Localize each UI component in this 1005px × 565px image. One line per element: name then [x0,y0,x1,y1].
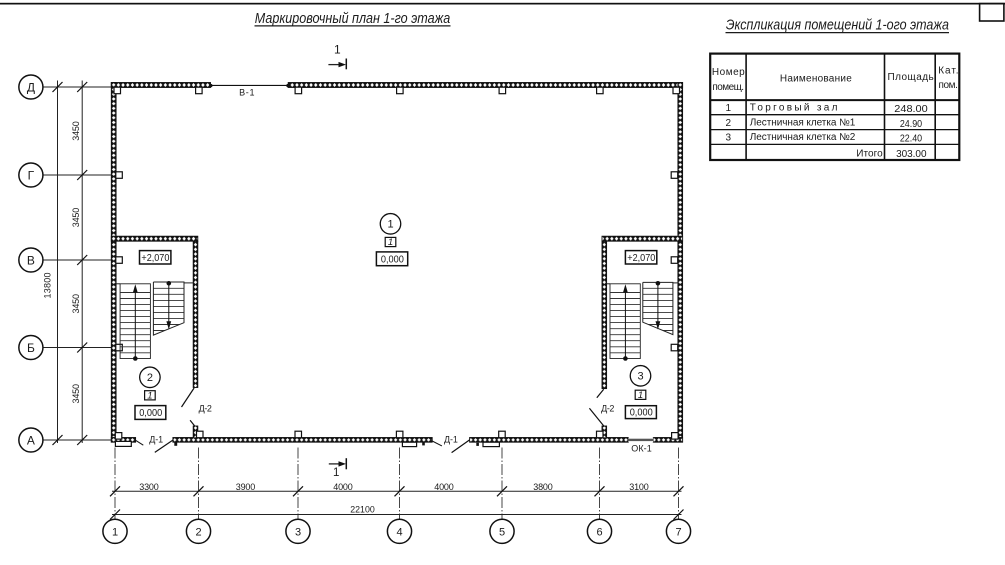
svg-text:5: 5 [499,526,505,538]
svg-text:Экспликация помещений 1-ого эт: Экспликация помещений 1-ого этажа [726,17,949,34]
svg-text:3450: 3450 [71,384,81,404]
svg-text:Лестничная клетка №1: Лестничная клетка №1 [750,117,856,128]
svg-text:22.40: 22.40 [900,134,923,145]
svg-text:1: 1 [638,390,643,401]
svg-text:2: 2 [726,118,732,129]
svg-text:Лестничная клетка №2: Лестничная клетка №2 [750,132,856,143]
svg-text:Площадь: Площадь [888,72,934,83]
svg-text:Кат.: Кат. [938,66,958,77]
svg-text:Д-2: Д-2 [199,404,212,414]
svg-text:Г: Г [28,168,35,182]
svg-text:4000: 4000 [333,482,353,492]
svg-text:ОК-1: ОК-1 [631,443,652,453]
svg-text:0,000: 0,000 [139,408,162,419]
svg-text:3450: 3450 [71,294,81,314]
svg-text:Итого: Итого [856,149,883,160]
svg-text:1: 1 [147,390,152,401]
svg-text:1: 1 [388,237,393,248]
svg-text:3900: 3900 [236,482,256,492]
svg-text:0,000: 0,000 [630,407,653,418]
svg-text:3450: 3450 [71,121,81,141]
svg-text:Торговый зал: Торговый зал [750,103,838,114]
svg-text:3: 3 [637,371,643,383]
svg-text:В: В [27,253,35,267]
svg-text:Д: Д [27,80,35,94]
svg-text:Д-2: Д-2 [601,404,614,414]
svg-text:24.90: 24.90 [900,119,923,130]
svg-text:3450: 3450 [71,208,81,228]
svg-text:А: А [27,433,35,447]
svg-text:Б: Б [27,341,35,355]
svg-text:В-1: В-1 [239,87,254,97]
svg-text:Наименование: Наименование [780,73,852,84]
svg-text:Номер: Номер [712,67,745,78]
svg-text:1: 1 [333,467,339,479]
svg-text:4000: 4000 [434,482,454,492]
svg-text:22100: 22100 [350,504,375,514]
svg-text:3100: 3100 [629,482,649,492]
svg-text:1: 1 [112,526,118,538]
svg-text:3300: 3300 [139,482,159,492]
svg-text:3: 3 [295,526,301,538]
svg-text:3800: 3800 [533,482,553,492]
svg-text:Д-1: Д-1 [444,434,458,444]
svg-text:2: 2 [147,372,153,384]
svg-text:13800: 13800 [43,273,53,299]
svg-text:303.00: 303.00 [896,149,927,160]
svg-text:Маркировочный план 1-го этажа: Маркировочный план 1-го этажа [255,10,451,27]
svg-text:пом.: пом. [938,80,958,91]
svg-text:248.00: 248.00 [894,104,928,115]
svg-text:1: 1 [334,43,341,57]
svg-text:Д-1: Д-1 [149,434,163,444]
svg-text:помещ.: помещ. [712,82,744,93]
svg-text:3: 3 [726,133,732,144]
svg-text:1: 1 [387,219,393,231]
svg-text:1: 1 [726,103,732,114]
svg-text:6: 6 [596,526,602,538]
svg-text:4: 4 [396,526,402,538]
svg-text:+2,070: +2,070 [141,253,169,264]
svg-text:7: 7 [675,526,681,538]
svg-text:+2,070: +2,070 [627,253,655,264]
svg-text:0,000: 0,000 [381,254,404,265]
svg-text:2: 2 [195,526,201,538]
